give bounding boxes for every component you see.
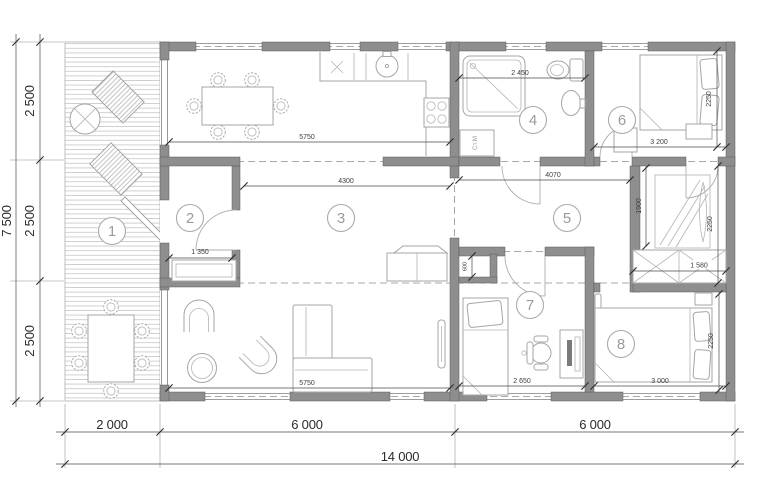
svg-text:5: 5 (563, 210, 571, 227)
svg-text:2: 2 (186, 210, 194, 227)
bench (686, 124, 712, 139)
shower (463, 56, 525, 116)
dim-bottom-seg-2: 6 000 (291, 417, 323, 432)
dim-left-seg-2: 2 500 (22, 205, 37, 237)
svg-text:2250: 2250 (708, 333, 715, 349)
svg-text:1900: 1900 (636, 198, 643, 214)
pillow (467, 300, 503, 327)
svg-text:1 350: 1 350 (191, 249, 209, 256)
deck-round-table (70, 104, 100, 134)
room-badge-1: 1 (99, 218, 126, 245)
dining-table (202, 87, 273, 125)
exterior-dimensions-left: 2 500 2 500 2 500 7 500 (0, 34, 64, 407)
dim-left-total: 7 500 (0, 205, 14, 237)
svg-text:7: 7 (526, 297, 534, 314)
room-badge-2: 2 (177, 205, 204, 232)
pillow (700, 58, 720, 89)
nightstand (695, 293, 712, 305)
svg-text:6: 6 (618, 112, 626, 129)
tv (394, 246, 447, 253)
monitor (567, 340, 572, 366)
dim-left-seg-3: 2 500 (22, 325, 37, 357)
washing-machine-label: Ст.М (472, 136, 479, 150)
svg-text:2 650: 2 650 (513, 378, 531, 385)
svg-text:3: 3 (337, 210, 345, 227)
dim-bottom-total: 14 000 (381, 449, 420, 464)
svg-text:3 000: 3 000 (651, 378, 669, 385)
washing-machine: Ст.М (460, 130, 494, 156)
room-badge-4: 4 (520, 107, 547, 134)
svg-text:1 580: 1 580 (690, 263, 708, 270)
room-badge-3: 3 (328, 205, 355, 232)
svg-text:1: 1 (108, 223, 116, 240)
dim-bottom-seg-3: 6 000 (579, 417, 611, 432)
svg-text:8: 8 (617, 336, 625, 353)
room-badge-5: 5 (554, 205, 581, 232)
svg-text:2250: 2250 (706, 91, 713, 107)
entry-bench (172, 260, 236, 281)
floor-plan-canvas: Ст.М 5750 (0, 0, 778, 502)
svg-text:5750: 5750 (299, 134, 315, 141)
entry (172, 260, 236, 281)
stove (424, 98, 449, 127)
dim-bottom-seg-1: 2 000 (96, 417, 128, 432)
svg-text:2250: 2250 (707, 216, 714, 232)
svg-text:600: 600 (463, 262, 469, 271)
svg-text:4070: 4070 (545, 172, 561, 179)
svg-text:3 200: 3 200 (650, 139, 668, 146)
svg-text:4300: 4300 (338, 178, 354, 185)
svg-text:2 450: 2 450 (511, 70, 529, 77)
exterior-dimensions-bottom: 2 000 6 000 6 000 14 000 (56, 404, 744, 468)
desk (560, 330, 583, 378)
room-badge-6: 6 (609, 107, 636, 134)
room-badge-7: 7 (517, 292, 544, 319)
svg-text:5750: 5750 (299, 380, 315, 387)
room-badge-8: 8 (608, 331, 635, 358)
svg-text:4: 4 (529, 112, 537, 129)
dim-left-seg-1: 2 500 (22, 85, 37, 117)
outdoor-table (88, 315, 134, 382)
floor-plan-drawing: Ст.М 5750 (0, 0, 778, 502)
pillow (693, 349, 711, 379)
